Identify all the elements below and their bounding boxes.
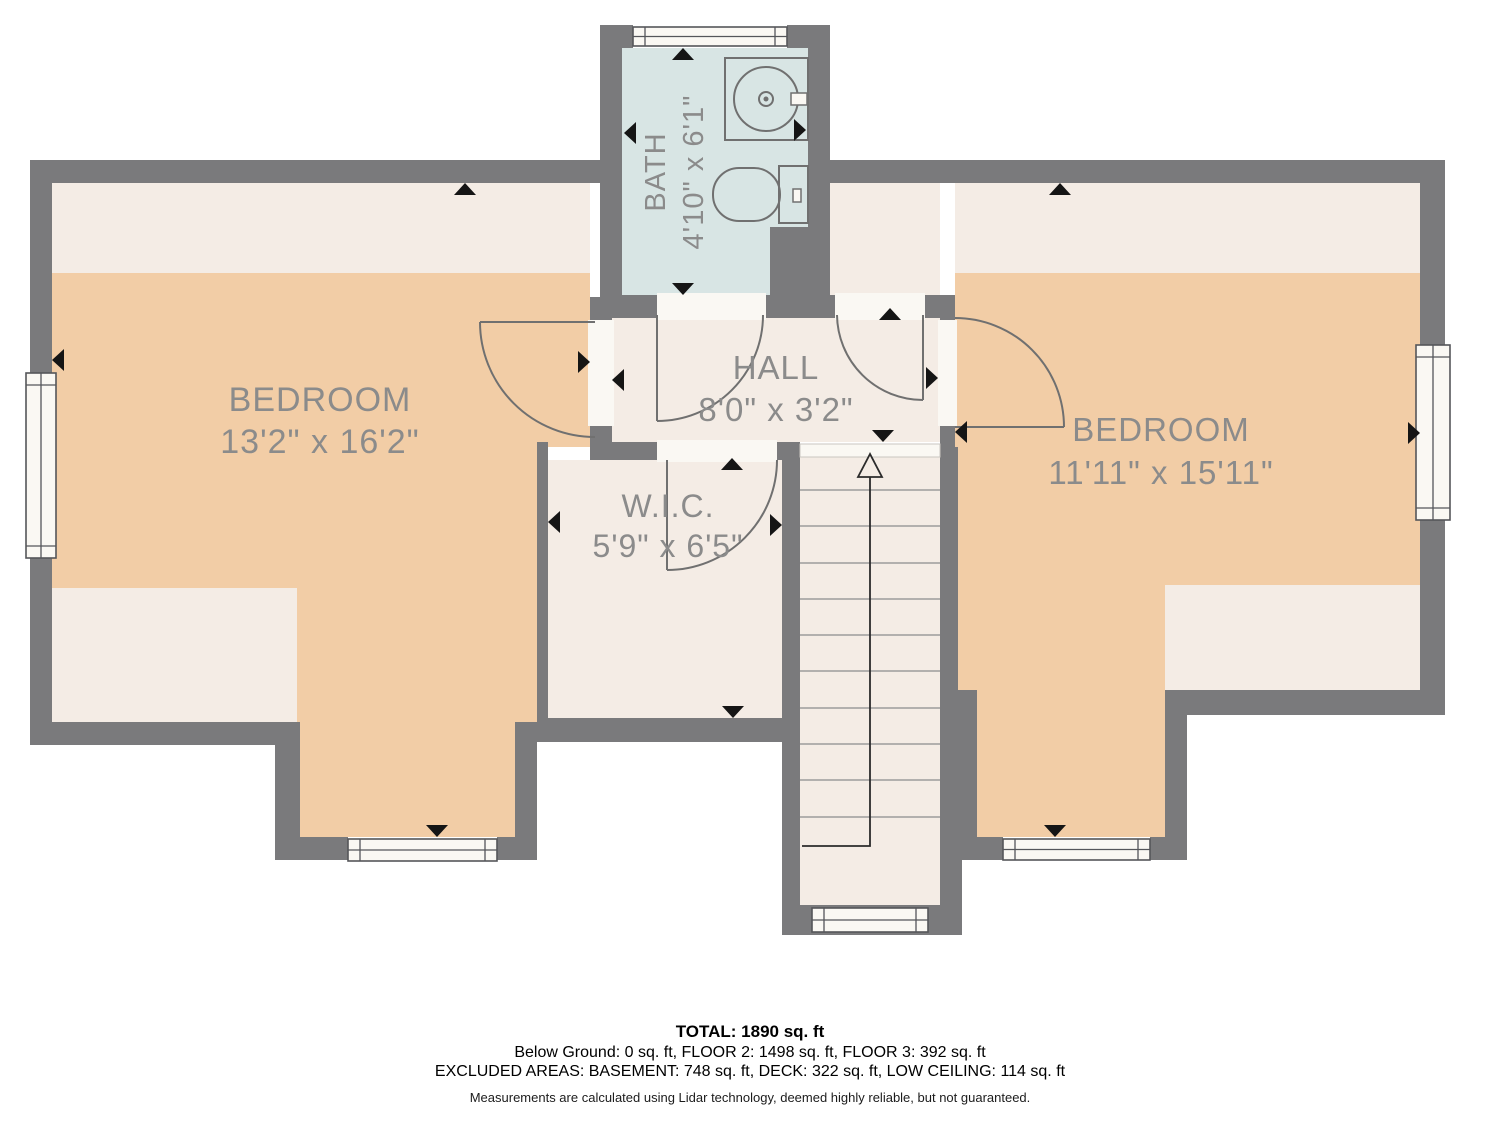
bath-dimensions: 4'10" x 6'1" xyxy=(678,95,710,250)
bedroom-right-side-window xyxy=(1416,345,1450,520)
bedroom-right-floor xyxy=(955,183,1420,837)
floors-area-text: Below Ground: 0 sq. ft, FLOOR 2: 1498 sq… xyxy=(514,1044,986,1061)
bedroom-right-bottom-window xyxy=(1003,839,1150,860)
floor-plan-canvas: BATH 4'10" x 6'1" BEDROOM 13'2" x 16'2" … xyxy=(0,0,1500,1125)
bedroom-left-dimensions: 13'2" x 16'2" xyxy=(220,423,419,461)
wic-label: W.I.C. xyxy=(621,488,714,524)
bedroom-left-side-window xyxy=(26,373,56,558)
wic-dimensions: 5'9" x 6'5" xyxy=(593,528,744,564)
wic-door-opening xyxy=(657,440,777,462)
closet-door-opening xyxy=(835,293,925,320)
total-area-text: TOTAL: 1890 sq. ft xyxy=(676,1022,825,1041)
bedroom-right-dimensions: 11'11" x 15'11" xyxy=(1048,454,1273,491)
bedroom-right-door-opening xyxy=(938,320,957,426)
excluded-area-text: EXCLUDED AREAS: BASEMENT: 748 sq. ft, DE… xyxy=(435,1063,1066,1080)
bath-label: BATH xyxy=(640,132,672,211)
bedroom-left-door-opening xyxy=(588,320,614,426)
hall-label: HALL xyxy=(733,349,820,386)
area-summary: TOTAL: 1890 sq. ft Below Ground: 0 sq. f… xyxy=(435,1022,1066,1105)
bedroom-right-label: BEDROOM xyxy=(1072,411,1250,448)
bedroom-left-label: BEDROOM xyxy=(229,381,412,419)
bath-window xyxy=(633,27,787,46)
stairwell-bottom-window xyxy=(812,908,928,932)
bath-door-opening xyxy=(657,293,766,320)
floor-plan: BATH 4'10" x 6'1" BEDROOM 13'2" x 16'2" … xyxy=(0,0,1500,1125)
hall-dimensions: 8'0" x 3'2" xyxy=(698,391,853,428)
bedroom-left-bottom-window xyxy=(348,839,497,861)
closet-floor xyxy=(825,183,940,295)
disclaimer-text: Measurements are calculated using Lidar … xyxy=(470,1090,1031,1105)
